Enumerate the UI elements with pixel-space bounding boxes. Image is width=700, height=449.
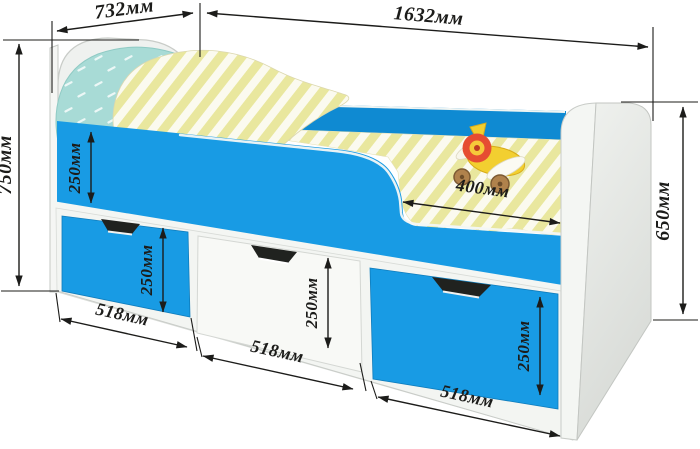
- dimension-label: 250мм: [302, 278, 321, 330]
- dimension-label: 250мм: [137, 245, 156, 297]
- extension-line: [56, 293, 60, 322]
- dimension-label: 650мм: [652, 181, 674, 240]
- dimension-label: 750мм: [0, 135, 16, 194]
- dimension-label: 732мм: [93, 0, 155, 24]
- extension-line: [197, 337, 202, 357]
- toy-propeller-center: [474, 145, 480, 151]
- bed-dimension-diagram: 732мм 1632мм 750мм 650мм 250мм 250мм: [0, 0, 700, 449]
- dimension-label: 250мм: [514, 321, 533, 373]
- diagram-svg: 732мм 1632мм 750мм 650мм 250мм 250мм: [0, 0, 700, 449]
- bed-illustration: [50, 38, 651, 440]
- dimension-label: 1632мм: [393, 2, 464, 30]
- dimension-label: 250мм: [65, 143, 84, 195]
